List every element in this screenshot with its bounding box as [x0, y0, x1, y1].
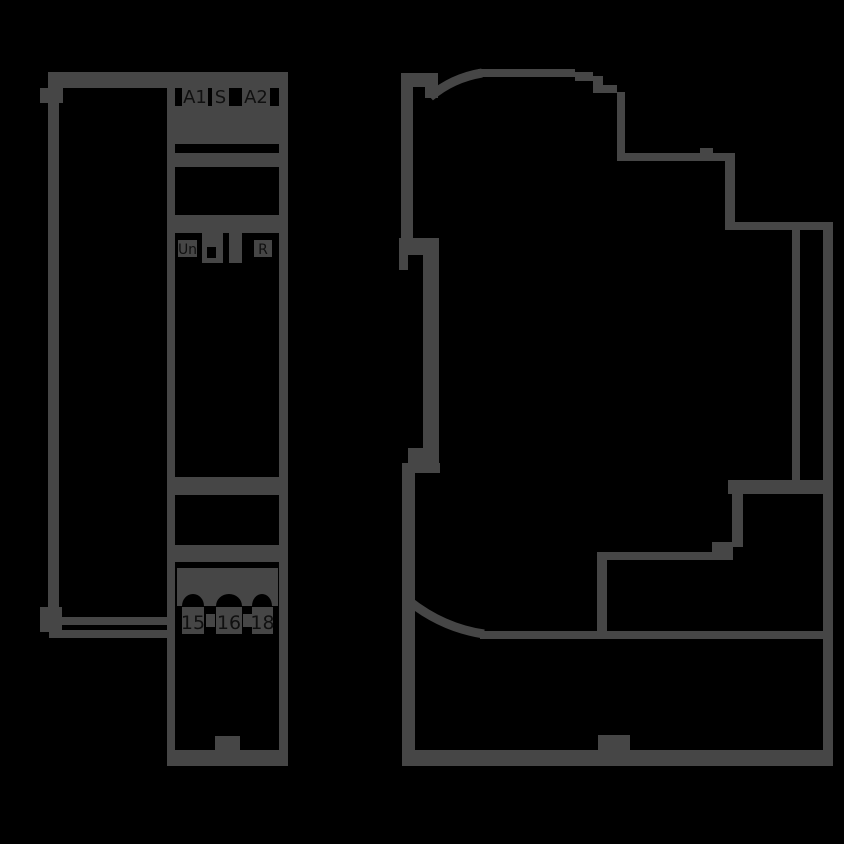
top-step-flat	[575, 72, 593, 81]
terminal-label-a2: A2	[244, 87, 268, 108]
lower-window-bottom-band	[175, 545, 280, 562]
front-view: A1 S A2 Un R 15	[40, 72, 288, 766]
module-bottom-bar	[167, 750, 288, 766]
lower-step-corner	[712, 542, 733, 560]
lower-recess-shelf	[597, 552, 715, 560]
upper-housing-block	[175, 106, 280, 144]
rail-guide-tab-lower	[408, 448, 423, 463]
un-label: Un	[178, 242, 197, 258]
terminal-label-16: 16	[217, 612, 241, 634]
lower-recess-vertical	[597, 552, 607, 636]
front-step-shelf-1	[617, 153, 730, 161]
front-bottom-edge-line	[48, 617, 169, 625]
front-rail-bottom-line	[49, 630, 169, 638]
display-bottom-band	[175, 215, 280, 233]
top-terminal-row: A1 S A2	[182, 87, 270, 108]
terminal-label-15: 15	[181, 612, 205, 634]
r-label: R	[258, 242, 268, 258]
module-bottom-tab	[215, 736, 240, 751]
indicator-row: Un R	[178, 233, 272, 263]
base-top-line	[480, 631, 823, 639]
terminal-divider-1	[206, 614, 215, 627]
front-step-vertical-2	[725, 153, 735, 230]
side-view	[399, 69, 833, 766]
module-right-edge	[279, 88, 288, 766]
rail-recess-edge	[423, 255, 439, 466]
shelf-tab	[700, 148, 713, 156]
terminal-label-18: 18	[250, 612, 274, 634]
side-bottom-bar	[402, 750, 833, 766]
terminal-block-outer-edge	[823, 230, 833, 766]
selector-window	[207, 247, 216, 258]
side-bottom-tab	[598, 735, 630, 750]
lower-window-top-band	[175, 477, 280, 495]
terminal-label-a1: A1	[183, 87, 207, 108]
indicator-block	[229, 233, 242, 263]
front-top-left-mount-tab	[40, 88, 63, 103]
terminal-block-top	[725, 222, 833, 230]
terminal-cover	[177, 568, 278, 606]
terminal-block-lower-vertical	[732, 494, 743, 547]
top-flat-edge	[478, 69, 575, 77]
front-left-edge	[48, 72, 59, 624]
bottom-terminal-row: 15 16 18	[181, 607, 275, 634]
terminal-label-s: S	[215, 87, 226, 108]
drawing-canvas: A1 S A2 Un R 15	[0, 0, 844, 844]
top-step-ledge	[601, 85, 617, 93]
din-clip-top-notch	[413, 87, 425, 98]
rear-edge-lower	[402, 473, 415, 766]
terminal-block-mid-shelf	[728, 480, 833, 494]
display-top-band	[175, 153, 280, 167]
rail-recess-top-step	[399, 238, 439, 255]
technical-drawing: A1 S A2 Un R 15	[0, 0, 844, 844]
base-front-curve	[409, 601, 484, 634]
front-top-bar	[48, 72, 288, 88]
rail-guide-tab-upper	[399, 255, 408, 270]
terminal-block-inner-line	[792, 230, 800, 487]
rail-recess-bottom-step	[402, 463, 440, 473]
module-left-edge	[167, 88, 175, 766]
front-step-vertical-1	[617, 92, 625, 156]
